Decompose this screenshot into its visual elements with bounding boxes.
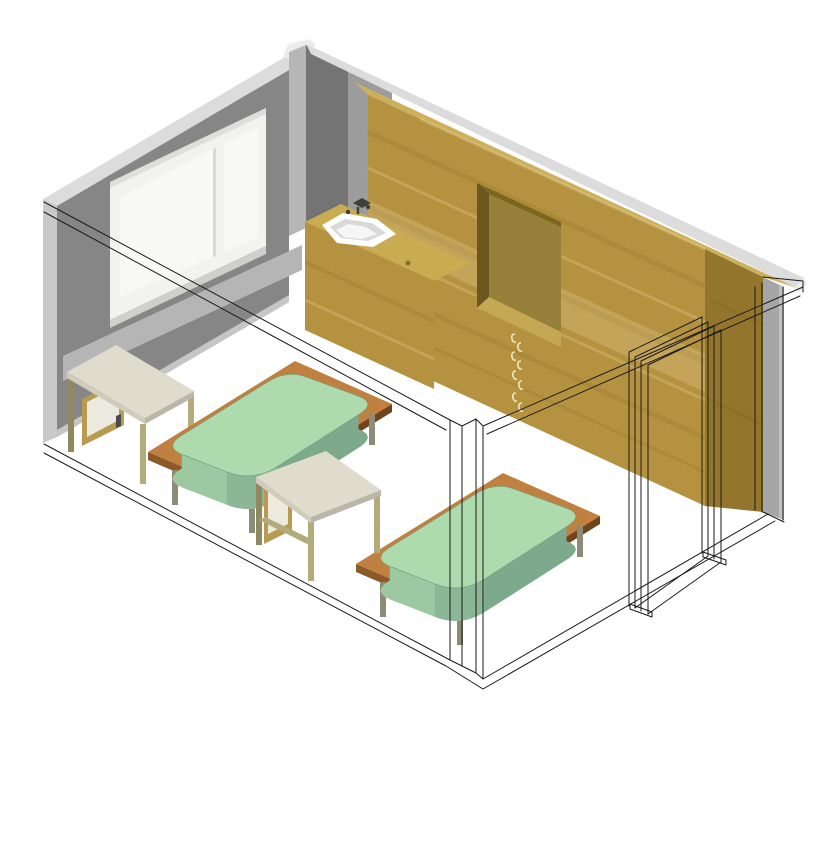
window-mullion-shade bbox=[213, 148, 216, 257]
window-pane-narrow bbox=[224, 127, 258, 252]
counter-knob[interactable] bbox=[406, 261, 411, 266]
desk-leg-front-left bbox=[140, 424, 146, 484]
desk-leg-back bbox=[256, 481, 262, 545]
desk-leg-back bbox=[68, 378, 74, 452]
render-viewport[interactable] bbox=[0, 0, 820, 847]
desk-leg-front bbox=[308, 521, 314, 581]
desk-leg-front-right bbox=[374, 494, 380, 553]
pilaster-light-face bbox=[289, 45, 306, 236]
wall-end-cut-face bbox=[43, 199, 57, 443]
desk-drawer-knob[interactable] bbox=[116, 414, 121, 428]
right-wall bbox=[763, 277, 784, 520]
niche-left-reveal bbox=[477, 183, 489, 308]
